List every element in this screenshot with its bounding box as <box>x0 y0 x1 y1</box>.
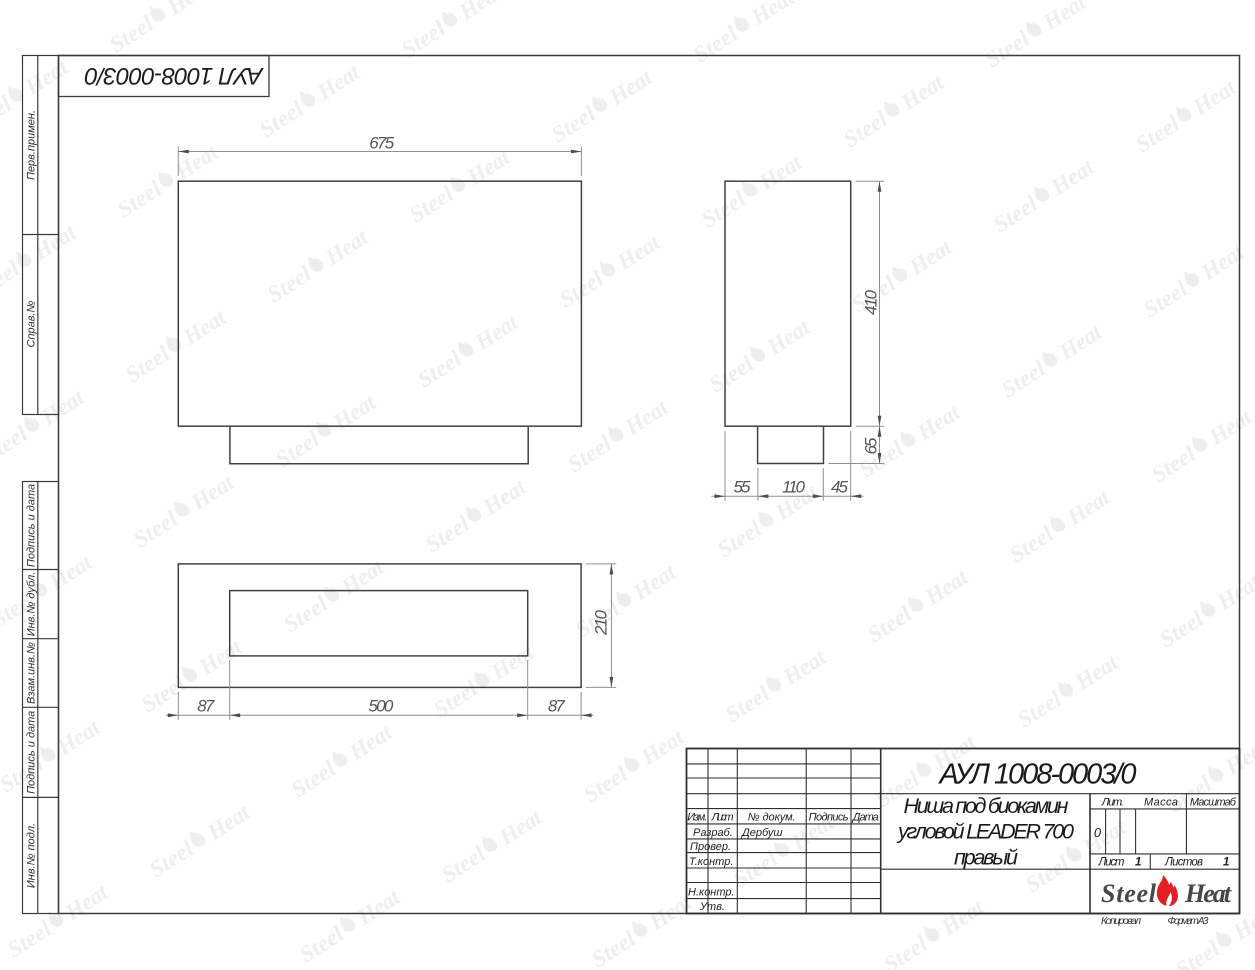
svg-text:Масштаб: Масштаб <box>1190 797 1237 809</box>
svg-text:87: 87 <box>548 697 566 716</box>
svg-text:Steel: Steel <box>1101 879 1157 908</box>
svg-text:Справ.№: Справ.№ <box>26 300 38 347</box>
svg-text:65: 65 <box>862 437 881 455</box>
svg-text:Подпись и дата: Подпись и дата <box>26 711 38 794</box>
svg-text:угловой LEADER 700: угловой LEADER 700 <box>896 820 1074 844</box>
svg-text:210: 210 <box>592 609 611 636</box>
svg-text:Подпись: Подпись <box>809 812 849 824</box>
svg-text:0: 0 <box>1094 825 1102 840</box>
svg-text:АУЛ 1008-0003/0: АУЛ 1008-0003/0 <box>938 759 1137 791</box>
svg-text:55: 55 <box>734 478 752 497</box>
svg-text:Перв.примен.: Перв.примен. <box>26 110 38 180</box>
svg-text:Изм.: Изм. <box>687 812 707 824</box>
svg-text:1: 1 <box>1223 856 1229 868</box>
svg-text:Т.контр.: Т.контр. <box>689 856 733 868</box>
svg-text:410: 410 <box>862 289 881 315</box>
svg-text:Инв.№ подл.: Инв.№ подл. <box>26 823 38 888</box>
svg-text:Heat: Heat <box>1184 879 1232 908</box>
svg-text:Лист: Лист <box>711 812 734 824</box>
svg-text:Разраб.: Разраб. <box>693 827 733 839</box>
svg-text:Масса: Масса <box>1144 797 1178 809</box>
svg-text:Дата: Дата <box>851 812 879 824</box>
svg-text:87: 87 <box>197 697 215 716</box>
svg-text:110: 110 <box>782 478 806 497</box>
svg-text:Подпись и дата: Подпись и дата <box>26 484 38 567</box>
svg-text:Копировал: Копировал <box>1101 915 1141 927</box>
svg-text:Инв.№ дубл.: Инв.№ дубл. <box>26 572 38 637</box>
svg-text:Дербуш: Дербуш <box>740 827 783 839</box>
svg-text:Лит.: Лит. <box>1101 797 1124 809</box>
svg-text:Утв.: Утв. <box>699 901 725 913</box>
svg-text:№ докум.: № докум. <box>748 812 796 824</box>
svg-text:Взам.инв.№: Взам.инв.№ <box>26 642 38 704</box>
svg-text:Ниша под биокамин: Ниша под биокамин <box>904 794 1069 818</box>
svg-text:Н.контр.: Н.контр. <box>688 887 735 899</box>
svg-text:правый: правый <box>954 846 1018 870</box>
svg-text:Формат А3: Формат А3 <box>1168 915 1209 927</box>
svg-text:500: 500 <box>368 697 394 716</box>
svg-text:675: 675 <box>369 134 395 153</box>
svg-text:Провер.: Провер. <box>690 841 731 853</box>
svg-text:1: 1 <box>1135 856 1141 868</box>
svg-text:АУЛ 1008-0003/0: АУЛ 1008-0003/0 <box>84 62 265 89</box>
svg-text:45: 45 <box>831 478 849 497</box>
svg-text:Лист: Лист <box>1098 856 1125 868</box>
svg-text:Листов: Листов <box>1164 856 1203 868</box>
